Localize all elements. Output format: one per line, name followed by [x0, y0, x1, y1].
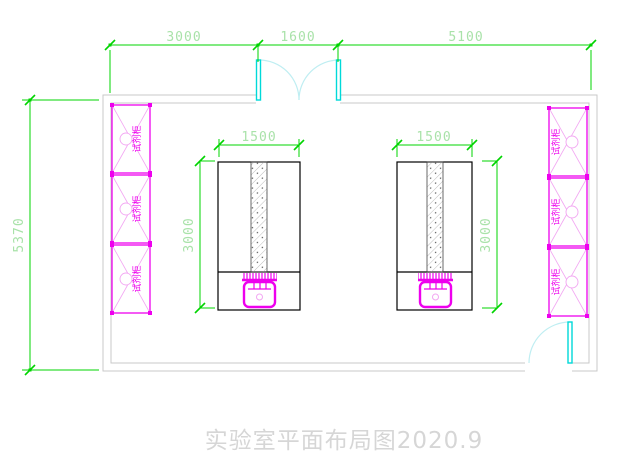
right-lab-bench [397, 162, 472, 310]
right-cabinet-column: 试剂柜 试剂柜 试剂柜 [547, 106, 589, 318]
left-dimension: 5370 [12, 95, 99, 375]
corner-block [585, 246, 589, 250]
dim-label-1600: 1600 [280, 30, 315, 45]
dim-dot [590, 44, 593, 47]
door-leaf-right [337, 60, 341, 100]
cabinet-label: 试剂柜 [550, 268, 562, 295]
cabinet-label: 试剂柜 [131, 265, 143, 292]
cabinet-label: 试剂柜 [131, 195, 143, 222]
right-bench-dimensions: 1500 3000 [392, 130, 502, 313]
cabinet-knob [120, 203, 132, 215]
corner-block [547, 246, 551, 250]
duct-strip [427, 162, 443, 272]
cabinet-knob [120, 273, 132, 285]
cabinet-knob [566, 136, 578, 148]
dim-label-3000: 3000 [166, 30, 201, 45]
wall-outer-line [103, 95, 597, 371]
dim-dot [337, 44, 340, 47]
top-dimension-chain: 3000 1600 5100 [105, 30, 596, 93]
door-leaf-left [257, 60, 261, 100]
room-walls [103, 93, 597, 373]
dim-label-1500: 1500 [416, 130, 451, 145]
sink-drain [257, 294, 263, 300]
reagent-cabinet: 试剂柜 [547, 246, 589, 318]
corner-block [585, 314, 589, 318]
corner-block [547, 314, 551, 318]
corner-block [148, 243, 152, 247]
cabinet-label: 试剂柜 [550, 198, 562, 225]
bottom-door-opening [525, 360, 572, 373]
corner-block [110, 311, 114, 315]
reagent-cabinet: 试剂柜 [110, 243, 152, 315]
dim-dot [29, 369, 32, 372]
cad-floorplan-viewport: 3000 1600 5100 5370 试剂柜 [0, 0, 619, 469]
top-door-opening [256, 93, 340, 105]
dim-dot [29, 99, 32, 102]
door-arc [529, 322, 570, 363]
corner-block [148, 103, 152, 107]
cabinet-knob [120, 133, 132, 145]
corner-block [547, 176, 551, 180]
dim-label-1500: 1500 [241, 130, 276, 145]
corner-block [110, 103, 114, 107]
cabinet-knob [566, 276, 578, 288]
dim-dot [257, 44, 260, 47]
corner-block [547, 106, 551, 110]
duct-strip [251, 162, 267, 272]
dim-label-3000: 3000 [182, 217, 197, 252]
corner-block [148, 173, 152, 177]
corner-block [585, 176, 589, 180]
cabinet-label: 试剂柜 [550, 128, 562, 155]
dim-label-3000: 3000 [479, 217, 494, 252]
reagent-cabinet: 试剂柜 [547, 176, 589, 248]
drawing-title: 实验室平面布局图2020.9 [205, 428, 483, 454]
dim-label-5370: 5370 [12, 217, 27, 252]
corner-block [585, 106, 589, 110]
bottom-right-door [529, 322, 572, 363]
cabinet-knob [566, 206, 578, 218]
door-leaf [568, 322, 572, 363]
corner-block [148, 311, 152, 315]
sink-comb [418, 273, 453, 279]
left-lab-bench [218, 162, 300, 310]
dim-label-5100: 5100 [448, 30, 483, 45]
reagent-cabinet: 试剂柜 [110, 103, 152, 175]
reagent-cabinet: 试剂柜 [547, 106, 589, 178]
sink-comb [242, 273, 277, 279]
reagent-cabinet: 试剂柜 [110, 173, 152, 245]
corner-block [110, 173, 114, 177]
sink-drain [433, 294, 439, 300]
cabinet-label: 试剂柜 [131, 125, 143, 152]
corner-block [110, 243, 114, 247]
dim-dot [109, 44, 112, 47]
floorplan-canvas: 3000 1600 5100 5370 试剂柜 [0, 0, 619, 469]
left-cabinet-column: 试剂柜 试剂柜 试剂柜 [110, 103, 152, 315]
